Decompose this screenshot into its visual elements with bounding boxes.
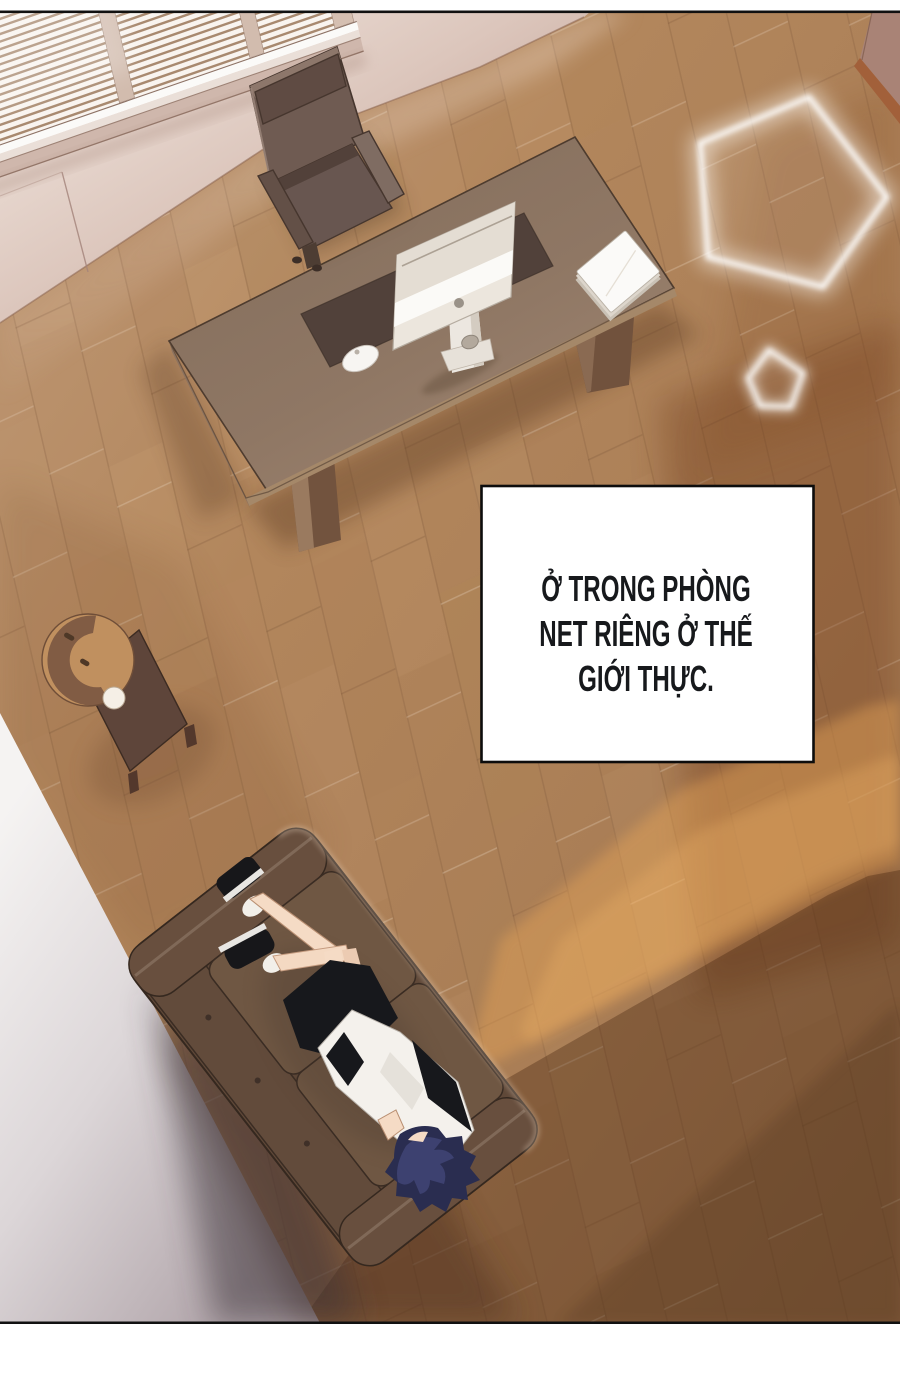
svg-text:Ở TRONG PHÒNG: Ở TRONG PHÒNG xyxy=(541,567,750,609)
svg-text:GIỚI THỰC.: GIỚI THỰC. xyxy=(578,657,714,699)
svg-text:NET RIÊNG Ở THẾ: NET RIÊNG Ở THẾ xyxy=(539,612,752,654)
